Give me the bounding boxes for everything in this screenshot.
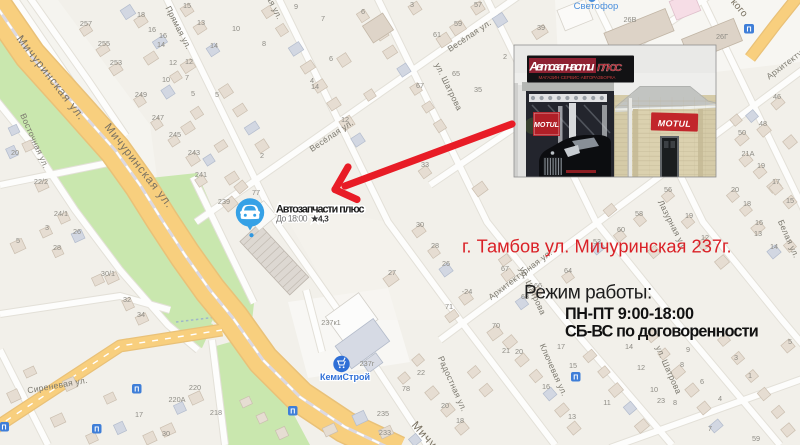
svg-text:20: 20 [11, 148, 19, 157]
svg-text:10: 10 [162, 75, 170, 84]
svg-text:65: 65 [452, 69, 460, 78]
svg-text:8: 8 [262, 39, 266, 48]
svg-text:5: 5 [788, 337, 792, 346]
svg-text:★4,3: ★4,3 [310, 213, 329, 223]
svg-text:50: 50 [738, 128, 746, 137]
svg-text:59: 59 [454, 19, 462, 28]
svg-text:MOTUL: MOTUL [658, 118, 692, 129]
svg-text:10: 10 [650, 385, 658, 394]
svg-text:28: 28 [53, 243, 61, 252]
svg-text:20: 20 [441, 401, 449, 410]
svg-text:241: 241 [195, 170, 207, 179]
svg-text:9: 9 [294, 2, 298, 11]
svg-text:257: 257 [80, 19, 92, 28]
svg-text:12: 12 [169, 58, 177, 67]
svg-text:64: 64 [564, 266, 572, 275]
svg-text:17: 17 [135, 410, 143, 419]
svg-text:30: 30 [416, 220, 424, 229]
svg-text:17: 17 [772, 177, 780, 186]
svg-text:20: 20 [515, 347, 523, 356]
svg-text:П: П [94, 427, 99, 434]
svg-text:16: 16 [148, 25, 156, 34]
svg-text:22/2: 22/2 [34, 177, 48, 186]
svg-text:4: 4 [310, 76, 314, 85]
svg-text:17: 17 [557, 342, 565, 351]
svg-text:67: 67 [501, 264, 509, 273]
svg-text:1: 1 [748, 371, 752, 380]
svg-text:220: 220 [189, 383, 201, 392]
svg-text:ПН-ПТ 9:00-18:00: ПН-ПТ 9:00-18:00 [565, 305, 694, 323]
svg-text:71: 71 [445, 302, 453, 311]
svg-text:48: 48 [759, 119, 767, 128]
svg-text:5: 5 [16, 236, 20, 245]
svg-text:34: 34 [137, 310, 145, 319]
svg-text:13: 13 [568, 412, 576, 421]
svg-text:6: 6 [329, 54, 333, 63]
svg-text:16: 16 [542, 382, 550, 391]
svg-text:19: 19 [685, 211, 693, 220]
svg-text:255: 255 [98, 39, 110, 48]
svg-text:59: 59 [752, 434, 760, 443]
svg-text:18: 18 [137, 10, 145, 19]
svg-text:12: 12 [637, 363, 645, 372]
svg-text:18: 18 [743, 199, 751, 208]
svg-text:8: 8 [680, 360, 684, 369]
svg-text:233: 233 [379, 428, 391, 437]
svg-text:MOTUL: MOTUL [534, 122, 559, 129]
svg-text:Автозапчасти: Автозапчасти [529, 60, 596, 74]
svg-text:7: 7 [321, 14, 325, 23]
svg-text:46: 46 [773, 92, 781, 101]
svg-text:218: 218 [210, 408, 222, 417]
svg-text:23: 23 [657, 396, 665, 405]
svg-text:4: 4 [718, 394, 722, 403]
svg-text:32: 32 [123, 295, 131, 304]
svg-text:6: 6 [361, 7, 365, 16]
svg-text:35: 35 [474, 85, 482, 94]
svg-text:СБ-ВС по договоренности: СБ-ВС по договоренности [565, 323, 758, 341]
svg-text:19: 19 [757, 161, 765, 170]
svg-text:18: 18 [456, 416, 464, 425]
svg-text:243: 243 [188, 148, 200, 157]
svg-text:61: 61 [433, 30, 441, 39]
svg-text:11: 11 [603, 398, 611, 407]
svg-text:2: 2 [503, 52, 507, 61]
svg-text:21А: 21А [742, 149, 755, 158]
svg-text:14: 14 [770, 242, 778, 251]
svg-text:220А: 220А [168, 395, 185, 404]
svg-text:28: 28 [431, 241, 439, 250]
svg-text:27: 27 [388, 268, 396, 277]
svg-text:26Г: 26Г [716, 32, 728, 41]
svg-text:До 18:00: До 18:00 [276, 213, 308, 223]
svg-text:235: 235 [377, 409, 389, 418]
svg-text:77: 77 [252, 188, 260, 197]
svg-text:247: 247 [152, 113, 164, 122]
svg-text:33: 33 [421, 160, 429, 169]
svg-text:2: 2 [260, 151, 264, 160]
svg-text:56: 56 [664, 185, 672, 194]
svg-text:60: 60 [617, 225, 625, 234]
svg-text:239: 239 [218, 197, 230, 206]
svg-text:15: 15 [786, 196, 794, 205]
svg-text:10: 10 [232, 24, 240, 33]
svg-text:П: П [290, 409, 295, 416]
svg-text:12: 12 [341, 115, 349, 124]
svg-text:3: 3 [410, 0, 414, 9]
svg-text:3: 3 [45, 223, 49, 232]
svg-text:30/1: 30/1 [101, 269, 115, 278]
svg-text:5: 5 [215, 90, 219, 99]
svg-text:22: 22 [417, 368, 425, 377]
svg-text:30: 30 [162, 429, 170, 438]
svg-text:7: 7 [185, 73, 189, 82]
svg-text:г. Тамбов ул. Мичуринская 237г: г. Тамбов ул. Мичуринская 237г. [462, 236, 732, 257]
svg-text:КемиСтрой: КемиСтрой [320, 372, 370, 382]
svg-text:78: 78 [402, 384, 410, 393]
svg-text:3: 3 [734, 353, 738, 362]
svg-text:237г: 237г [360, 359, 375, 368]
svg-text:8: 8 [673, 398, 677, 407]
svg-text:21: 21 [502, 346, 510, 355]
svg-text:Светофор: Светофор [574, 1, 619, 12]
svg-text:Режим работы:: Режим работы: [524, 283, 652, 304]
svg-text:16: 16 [159, 31, 167, 40]
svg-text:67: 67 [416, 81, 424, 90]
svg-text:57: 57 [474, 0, 482, 9]
svg-text:249: 249 [135, 90, 147, 99]
svg-text:26: 26 [73, 227, 81, 236]
svg-text:58: 58 [635, 209, 643, 218]
svg-text:26: 26 [442, 259, 450, 268]
svg-text:П: П [1, 425, 6, 432]
svg-text:14: 14 [625, 342, 633, 351]
svg-text:14: 14 [157, 40, 165, 49]
svg-text:П: П [746, 27, 751, 34]
svg-text:26В: 26В [624, 15, 637, 24]
svg-text:5: 5 [191, 89, 195, 98]
svg-text:15: 15 [569, 361, 577, 370]
svg-text:13: 13 [754, 229, 762, 238]
svg-text:15: 15 [183, 1, 191, 10]
svg-text:9: 9 [686, 345, 690, 354]
svg-text:П: П [573, 375, 578, 382]
svg-text:39: 39 [537, 23, 545, 32]
svg-text:20: 20 [731, 185, 739, 194]
svg-text:245: 245 [169, 130, 181, 139]
svg-text:253: 253 [110, 58, 122, 67]
svg-text:70: 70 [492, 321, 500, 330]
svg-text:14: 14 [210, 41, 218, 50]
svg-text:ПЛЮС: ПЛЮС [597, 62, 622, 74]
svg-text:7: 7 [708, 424, 712, 433]
svg-text:-24: -24 [462, 287, 473, 296]
svg-text:16: 16 [755, 218, 763, 227]
svg-text:12: 12 [185, 57, 193, 66]
svg-text:6: 6 [700, 377, 704, 386]
svg-text:24/1: 24/1 [54, 209, 68, 218]
svg-text:П: П [134, 387, 139, 394]
svg-text:237к1: 237к1 [321, 318, 340, 327]
svg-text:МАГАЗИН·СЕРВИС·АВТОРАЗБОРКА: МАГАЗИН·СЕРВИС·АВТОРАЗБОРКА [539, 75, 617, 80]
svg-text:13: 13 [197, 18, 205, 27]
